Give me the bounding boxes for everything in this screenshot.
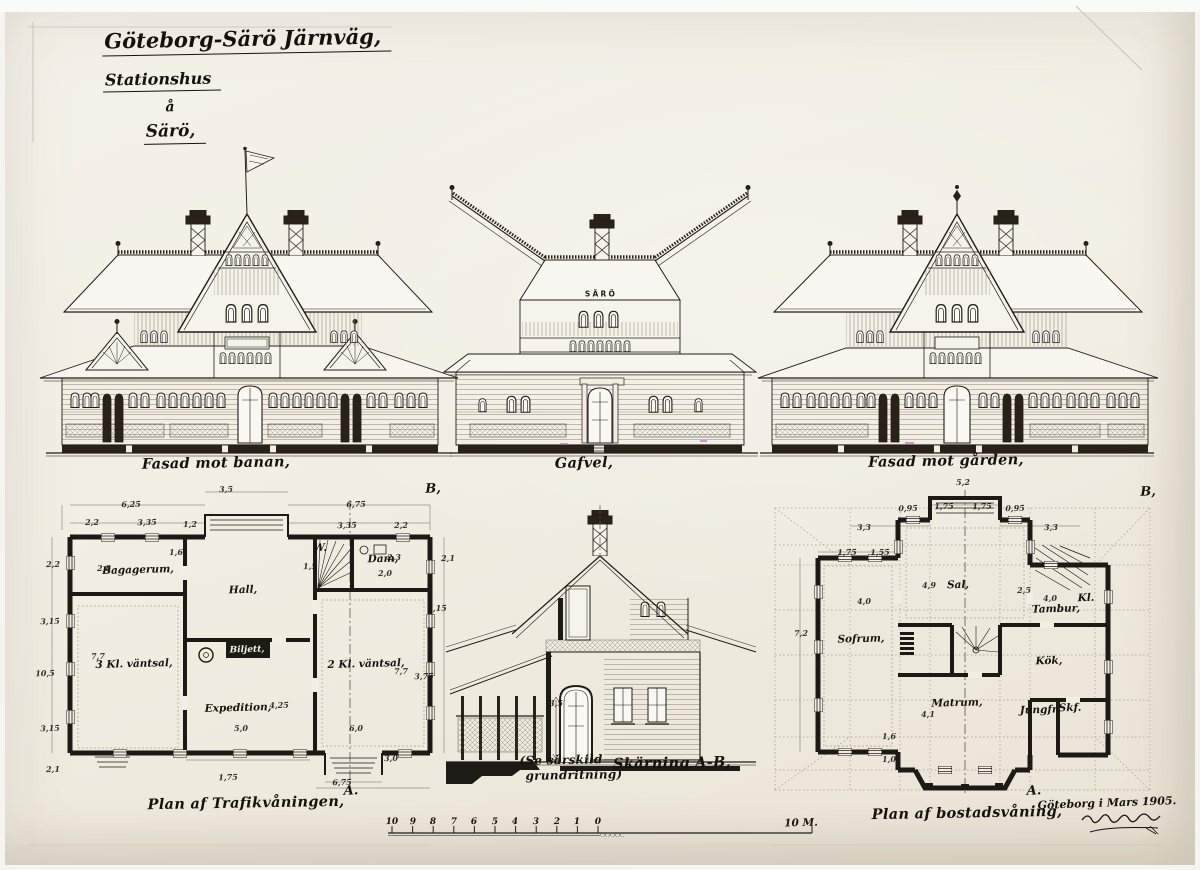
scale-number: 4 [512,817,519,827]
dimension-label: 10,5 [35,668,55,679]
section-marker-label: B, [425,481,441,496]
dimension-label: 4,0 [857,596,871,606]
dimension-label: 6,25 [121,499,141,510]
room-label: Matrum, [931,696,983,709]
room-label: Biljett, [229,645,264,656]
room-label: Sal, [947,579,969,592]
dimension-label: 0,95 [1005,503,1025,514]
room-label: Jungfr. [1020,703,1061,716]
dimension-label: 1,2 [183,519,197,529]
dimension-label: 4,9 [922,580,936,590]
scale-number: 10 M. [784,817,818,830]
scale-number: 6 [471,817,478,827]
dimension-label: 3,0 [384,753,398,763]
dimension-label: 1,5 [303,561,317,571]
room-label: W. [313,542,327,554]
scale-number: 5 [492,817,499,827]
dimension-label: 3,35 [137,517,157,528]
room-label: Tambur, [1032,602,1080,615]
dimension-label: 1,75 [934,501,954,512]
dimension-label: 3,15 [427,603,447,614]
dimension-label: 7,2 [794,628,808,638]
dimension-label: 1,75 [837,547,857,558]
dimension-label: 1,6 [169,547,183,557]
dimension-label: 6,75 [346,499,366,510]
dimension-label: 3,3 [857,522,871,532]
room-label: Kök, [1035,655,1062,668]
dimension-label: 1,75 [218,772,238,783]
room-label: Kl. [1077,592,1094,604]
dimension-label: 7,7 [91,651,105,661]
scale-number: 1 [574,817,581,827]
dimension-label: 1,75 [972,501,992,512]
dimension-label: 2,2 [394,520,408,530]
scale-number: 9 [410,817,417,827]
dimension-label: 6,0 [349,723,363,733]
dimension-label: 1,0 [882,754,896,764]
dimension-label: 2,1 [441,553,455,563]
dimension-label: 1,55 [870,547,890,558]
dimension-label: 5,0 [234,723,248,733]
section-marker-label: A. [343,783,358,798]
scanned-drawing-photo: { "photo": { "paper_color": "#f2eee4", "… [0,0,1200,870]
scale-number: 8 [430,817,437,827]
dimension-label: 2,2 [46,559,60,569]
dimension-label: 2,8 [97,563,111,573]
dimension-label: 7,7 [394,666,408,676]
scale-number: 10 [386,817,399,827]
dimension-label: 3,5 [219,484,233,494]
dimension-label: 4,25 [269,700,289,711]
dimension-label: 2,3 [387,552,401,562]
dimension-label: 3,35 [337,520,357,531]
scale-number: 0 [595,817,602,827]
label-layer: Bagagerum,Hall,3 Kl. väntsal,Biljett,Exp… [0,0,1200,870]
dimension-label: 3,15 [40,723,60,734]
room-label: 3 Kl. väntsal, [95,657,172,671]
dimension-label: 4,0 [1043,593,1057,603]
dimension-label: 3,5 [549,698,563,708]
room-label: Skf. [1059,702,1082,715]
dimension-label: 2,0 [378,568,392,578]
dimension-label: 3,3 [1044,522,1058,532]
section-marker-label: A. [1026,783,1041,798]
dimension-label: 3,15 [40,616,60,627]
room-label: Sofrum, [837,632,884,645]
dimension-label: 2,5 [1017,585,1031,595]
room-label: Hall, [229,584,258,597]
scale-number: 7 [451,817,458,827]
dimension-label: 1,6 [882,731,896,741]
dimension-label: 2,1 [46,764,60,774]
scale-number: 3 [533,817,540,827]
dimension-label: 4,1 [921,709,935,719]
scale-number: 2 [554,817,561,827]
dimension-label: 2,2 [85,517,99,527]
room-label: Bagagerum, [102,563,174,577]
dimension-label: 5,2 [956,477,970,487]
dimension-label: 0,95 [898,503,918,514]
dimension-label: 3,75 [414,671,434,682]
section-marker-label: B, [1140,484,1156,499]
room-label: Expedition, [204,701,271,715]
